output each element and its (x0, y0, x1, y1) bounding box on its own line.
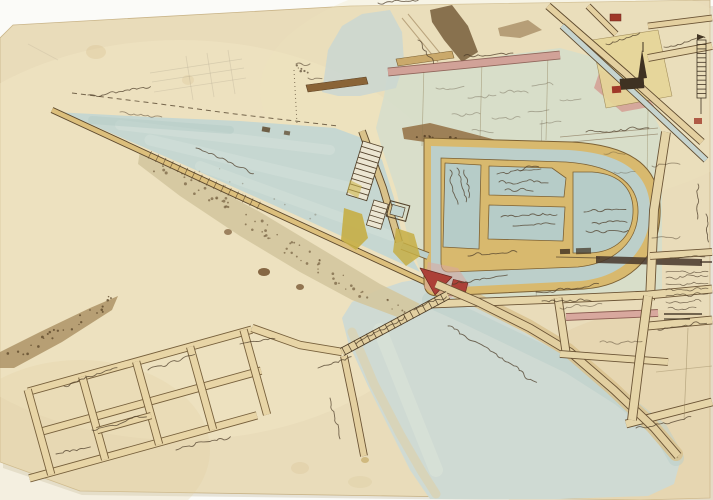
spit-stipple (227, 202, 229, 204)
spit-stipple (345, 288, 346, 289)
ridge-stipple (416, 136, 418, 138)
west-shore-stipple (102, 306, 104, 308)
spit-stipple (183, 176, 185, 178)
spit-stipple (387, 299, 388, 300)
spit-stipple (366, 296, 368, 298)
spit-stipple (293, 242, 295, 244)
spit-stipple (245, 223, 247, 225)
church-building (620, 77, 645, 90)
road-end (361, 457, 369, 463)
spit-stipple (352, 287, 355, 290)
age-spot (348, 476, 372, 488)
spit-stipple (184, 182, 187, 185)
spit-stipple (300, 260, 301, 261)
harbor-marks (219, 168, 220, 169)
spit-stipple (267, 237, 269, 239)
harbor-marks (314, 214, 316, 216)
spit-stipple (290, 252, 292, 254)
spit-stipple (284, 252, 286, 254)
spit-stipple (267, 224, 269, 226)
spit-stipple (251, 228, 254, 231)
west-shore-stipple (102, 311, 104, 313)
spit-rock (224, 229, 232, 235)
west-shore-stipple (71, 328, 73, 330)
spit-stipple (245, 214, 247, 216)
basin-north (489, 166, 566, 197)
spit-stipple (306, 262, 309, 265)
spit-stipple (362, 291, 364, 293)
west-shore-stipple (96, 312, 98, 314)
spit-stipple (153, 170, 155, 172)
spit-stipple (264, 229, 267, 232)
harbor-marks (229, 181, 230, 182)
west-shore-stipple (49, 331, 52, 334)
west-shore-stipple (53, 329, 55, 331)
red-lot (610, 14, 621, 21)
harbor-plan-map (0, 0, 713, 500)
west-shore-stipple (22, 353, 24, 355)
west-shore-stipple (17, 351, 19, 353)
west-shore-stipple (30, 344, 32, 346)
spit-stipple (343, 275, 344, 276)
ridge-stipple (424, 135, 426, 137)
spit-stipple (264, 235, 266, 237)
harbor-marks (242, 194, 243, 195)
spit-stipple (317, 272, 319, 274)
west-shore-stipple (80, 321, 82, 323)
west-shore-stipple (100, 308, 103, 311)
spit-stipple (165, 171, 168, 174)
spit-stipple (225, 197, 228, 200)
sounding-marks (298, 67, 299, 68)
wharf-mark (560, 249, 570, 254)
spit-stipple (332, 272, 335, 275)
spit-stipple (317, 264, 319, 266)
spit-stipple (334, 282, 337, 285)
west-shore-stipple (26, 353, 29, 356)
west-shore-stipple (57, 330, 59, 332)
spit-stipple (198, 189, 200, 191)
harbor-marks (242, 183, 244, 185)
spit-stipple (276, 234, 278, 236)
spit-stipple (162, 169, 165, 172)
sounding-marks (303, 70, 305, 72)
spit-stipple (254, 221, 256, 223)
sounding-marks (307, 72, 309, 74)
spit-stipple (190, 179, 192, 181)
west-shore-stipple (79, 314, 81, 316)
west-shore-stipple (47, 333, 49, 335)
spit-stipple (208, 199, 210, 201)
harbor-marks (225, 185, 226, 186)
sounding-marks (299, 70, 302, 73)
harbor-marks (273, 198, 275, 200)
spit-stipple (296, 256, 298, 258)
spit-stipple (162, 165, 164, 167)
spit-stipple (350, 284, 353, 287)
spit-stipple (261, 231, 263, 233)
spit-stipple (391, 308, 392, 309)
spit-stipple (299, 244, 301, 246)
age-spot (86, 45, 106, 59)
west-shore-stipple (41, 336, 44, 339)
west-shore-stipple (89, 309, 91, 311)
spit-stipple (216, 198, 217, 199)
scanned-map-page (0, 0, 713, 500)
spit-stipple (269, 238, 270, 239)
spit-stipple (358, 295, 361, 298)
spit-stipple (401, 310, 403, 312)
basin-west (443, 163, 481, 249)
west-shore-stipple (7, 352, 10, 355)
spit-rock (258, 268, 270, 276)
west-shore-stipple (37, 345, 40, 348)
west-shore-stipple (106, 299, 109, 302)
west-shore-stipple (63, 329, 65, 331)
spit-stipple (404, 311, 406, 313)
west-shore-stipple (78, 324, 79, 325)
spit-stipple (397, 304, 399, 306)
harbor-marks (309, 218, 311, 220)
red-building-accent (612, 86, 621, 94)
spit-stipple (338, 282, 340, 284)
spit-rock (296, 284, 304, 290)
west-shore-stipple (110, 297, 112, 299)
spit-stipple (286, 248, 288, 250)
harbor-marks (284, 204, 286, 206)
east-cross-street (650, 252, 712, 256)
spit-stipple (211, 197, 214, 200)
spit-stipple (309, 251, 311, 253)
spit-stipple (291, 241, 293, 243)
wharf-mark (576, 248, 591, 255)
spit-stipple (221, 200, 222, 201)
spit-stipple (225, 205, 227, 207)
harbor-marks (199, 171, 201, 173)
spit-stipple (319, 259, 321, 261)
age-spot (291, 462, 309, 474)
west-shore-stipple (51, 337, 53, 339)
spit-stipple (261, 220, 264, 223)
spit-stipple (193, 192, 196, 195)
basin-middle (488, 205, 565, 241)
spit-stipple (317, 268, 318, 269)
sounding-marks (300, 68, 302, 70)
spit-stipple (204, 187, 207, 190)
sounding-marks (296, 64, 298, 66)
red-lot (694, 118, 702, 124)
west-shore-stipple (108, 296, 110, 298)
spit-stipple (332, 277, 335, 280)
